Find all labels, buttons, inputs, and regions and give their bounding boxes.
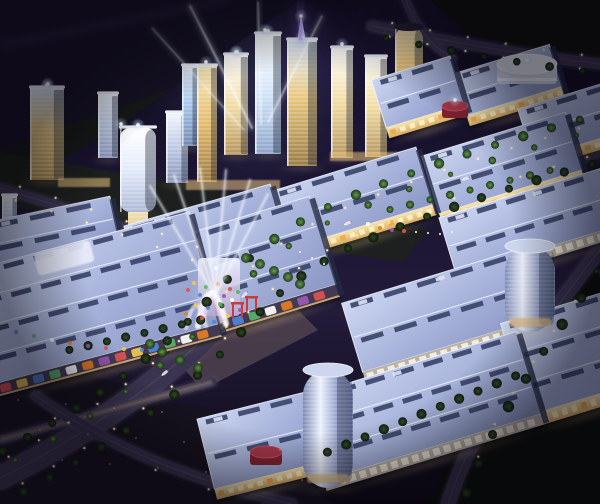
city-night-rendering [0,0,600,504]
scene-canvas [0,0,600,504]
vignette-overlay [0,0,600,504]
